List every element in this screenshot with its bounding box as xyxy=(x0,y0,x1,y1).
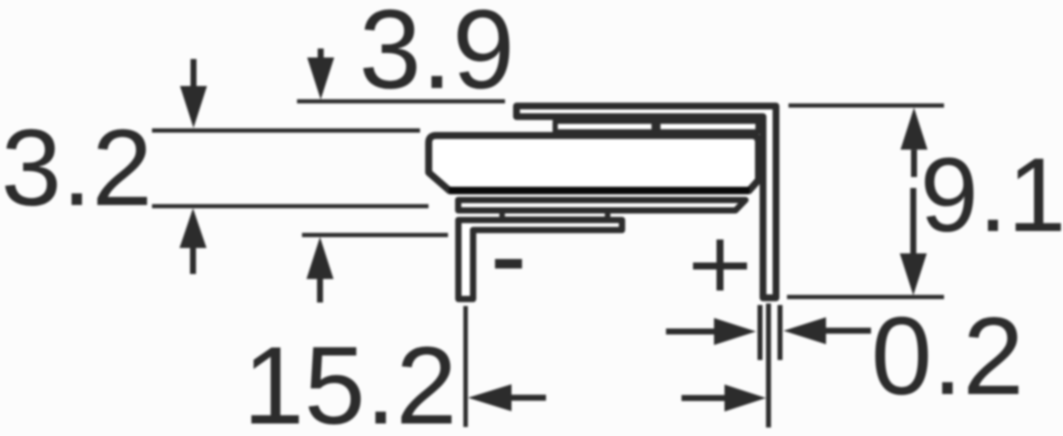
svg-text:0.2: 0.2 xyxy=(871,295,1024,418)
svg-text:3.2: 3.2 xyxy=(1,107,153,229)
svg-text:15.2: 15.2 xyxy=(243,325,457,436)
svg-text:9.1: 9.1 xyxy=(920,137,1063,254)
svg-text:3.9: 3.9 xyxy=(359,0,515,112)
